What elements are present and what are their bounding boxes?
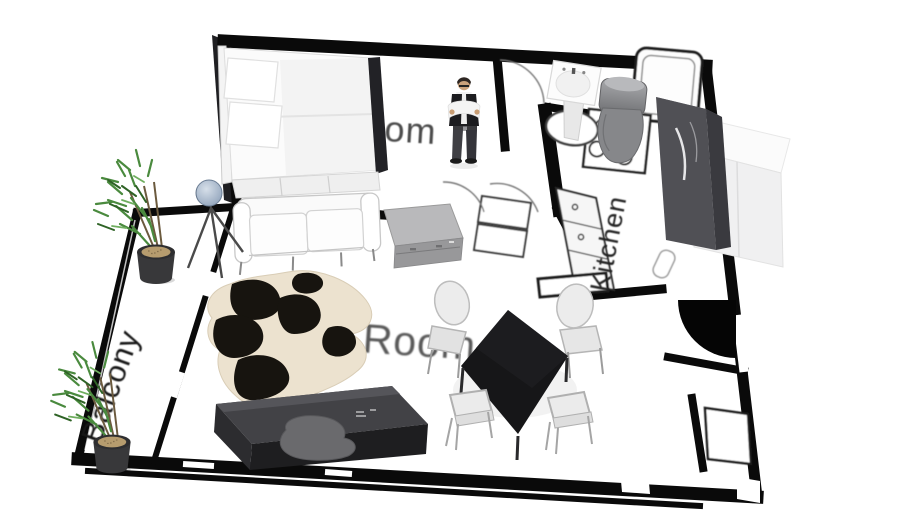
- bath-door-arc: [500, 60, 544, 103]
- kitchen-door-leaf: [651, 248, 677, 280]
- floor-plan-scene[interactable]: Room Room Kitchen Balcony: [0, 0, 910, 512]
- hall-closets: [474, 196, 531, 257]
- sideboard: [384, 204, 463, 268]
- cowhide-rug: [208, 271, 372, 408]
- floor-plan-svg[interactable]: Room Room Kitchen Balcony: [0, 0, 910, 512]
- wall-balcony-top: [137, 207, 235, 213]
- dining-chair: [546, 392, 593, 454]
- wall-entry-top: [668, 357, 744, 371]
- entry-door-swing: [678, 300, 736, 358]
- wall-bath-left: [497, 57, 505, 147]
- standing-person: [448, 77, 480, 169]
- wall-entry-left: [692, 398, 703, 468]
- bed: [218, 46, 388, 198]
- entry-closet: [705, 408, 751, 464]
- lamp-head: [196, 180, 222, 206]
- sofa: [233, 193, 382, 275]
- dining-chair: [446, 390, 494, 450]
- kitchen-cabinet: [656, 97, 731, 250]
